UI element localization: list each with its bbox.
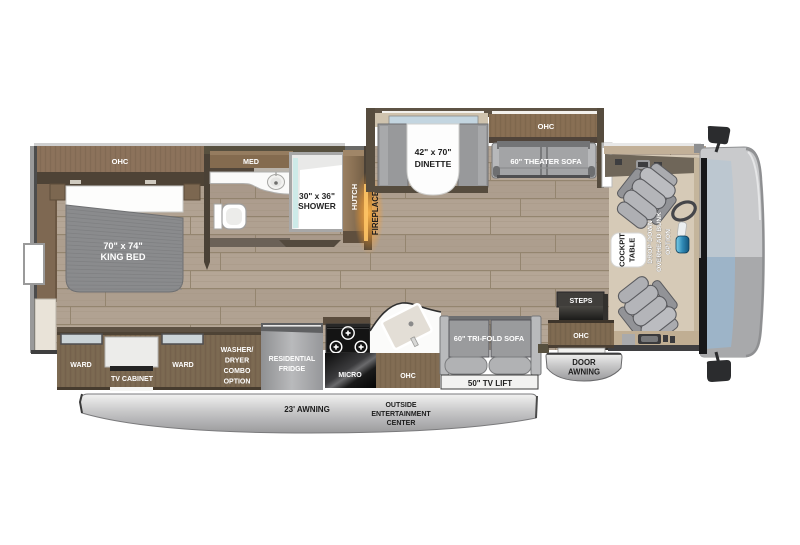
svg-text:WARD: WARD xyxy=(70,362,91,369)
svg-text:OPTION: OPTION xyxy=(224,379,251,386)
svg-text:KING BED: KING BED xyxy=(101,252,146,262)
svg-text:OHC: OHC xyxy=(538,122,555,131)
svg-text:OHC: OHC xyxy=(112,157,129,166)
svg-text:DINETTE: DINETTE xyxy=(415,159,452,169)
svg-text:WARD: WARD xyxy=(172,362,193,369)
svg-text:23' AWNING: 23' AWNING xyxy=(284,405,330,414)
svg-text:CENTER: CENTER xyxy=(387,420,416,427)
svg-text:OHC: OHC xyxy=(573,333,589,340)
svg-text:TABLE: TABLE xyxy=(628,238,637,262)
svg-text:30" x 36": 30" x 36" xyxy=(299,191,335,201)
svg-text:OHC: OHC xyxy=(400,373,416,380)
svg-text:42" x 70": 42" x 70" xyxy=(415,147,452,157)
svg-text:DRYER: DRYER xyxy=(225,358,249,365)
svg-text:FIREPLACE: FIREPLACE xyxy=(371,191,380,235)
svg-text:COMBO: COMBO xyxy=(224,368,251,375)
svg-text:STEPS: STEPS xyxy=(570,298,593,305)
svg-text:FRIDGE: FRIDGE xyxy=(279,366,306,373)
svg-text:SHOWER: SHOWER xyxy=(298,201,336,211)
svg-text:WASHER/: WASHER/ xyxy=(221,347,254,354)
svg-text:DOOR: DOOR xyxy=(572,358,596,367)
svg-text:60" THEATER SOFA: 60" THEATER SOFA xyxy=(510,157,582,166)
svg-text:OPTION: OPTION xyxy=(665,229,672,255)
svg-text:AWNING: AWNING xyxy=(568,368,600,377)
svg-text:OUTSIDE: OUTSIDE xyxy=(385,402,416,409)
svg-text:70" x 74": 70" x 74" xyxy=(103,241,142,251)
svg-text:MICRO: MICRO xyxy=(338,372,362,379)
svg-text:RESIDENTIAL: RESIDENTIAL xyxy=(269,356,316,363)
svg-text:60" TRI-FOLD SOFA: 60" TRI-FOLD SOFA xyxy=(454,334,525,343)
svg-text:OVERHEAD BUNK: OVERHEAD BUNK xyxy=(656,212,663,272)
svg-text:TV CABINET: TV CABINET xyxy=(111,376,154,383)
svg-text:ENTERTAINMENT: ENTERTAINMENT xyxy=(371,411,431,418)
svg-text:MED: MED xyxy=(243,157,259,166)
svg-text:50" TV LIFT: 50" TV LIFT xyxy=(468,379,512,388)
svg-text:DROP-DOWN: DROP-DOWN xyxy=(647,220,654,264)
svg-text:COCKPIT: COCKPIT xyxy=(618,233,627,267)
